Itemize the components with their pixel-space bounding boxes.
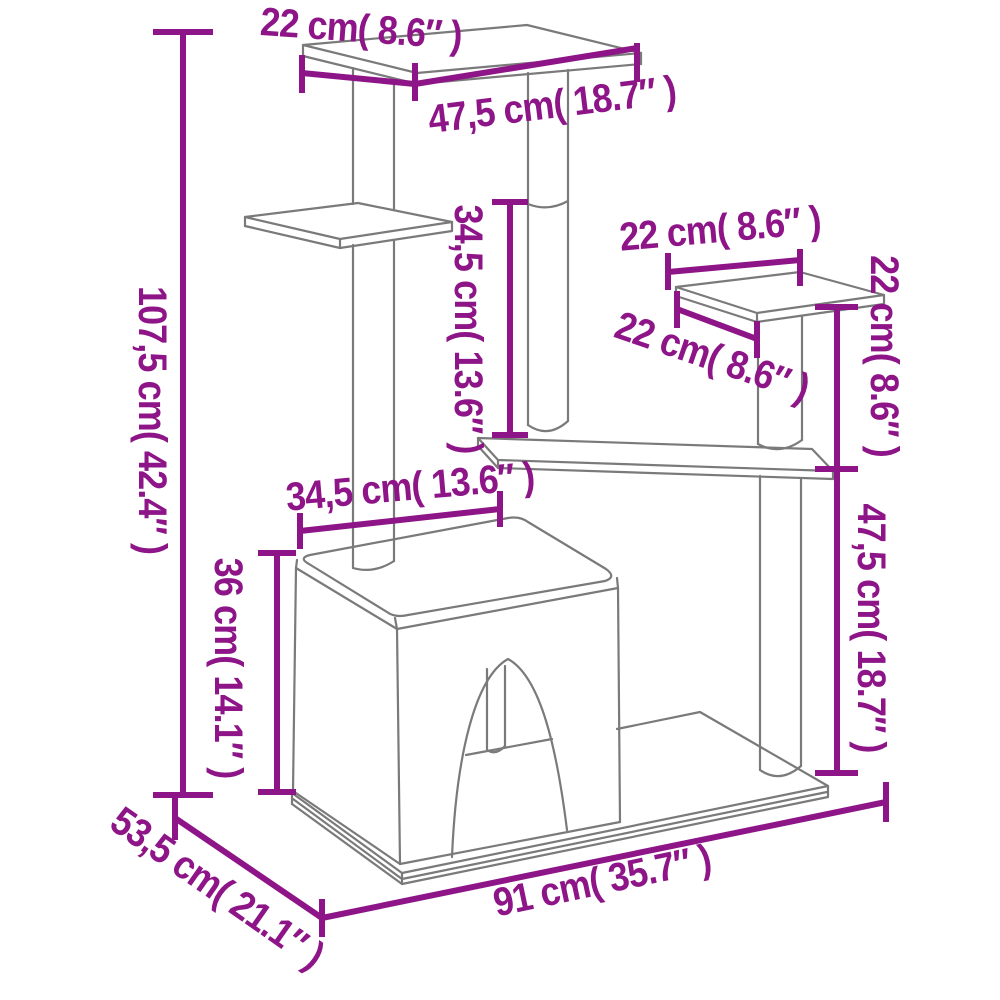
dimension-diagram: 107,5 cm( 42.4″ ) 22 cm( 8.6″ ) 47,5 cm(… [0,0,1000,1000]
dim-side-platform-width [668,249,800,290]
dim-label-lower-post-height: 47,5 cm( 18.7″ ) [851,504,891,753]
right-post-lower [760,476,801,776]
dim-label-side-post-height: 22 cm( 8.6″ ) [864,255,904,457]
dim-label-middle-post-height: 34,5 cm( 13.6″ ) [448,205,488,454]
right-platform [676,272,884,322]
house-arch-door [452,659,567,857]
cat-house [293,518,620,865]
left-platform [245,203,452,248]
dim-label-house-height: 36 cm( 14.1″ ) [208,558,248,779]
house-interior-floor [466,739,552,755]
dim-middle-post-height [492,202,528,435]
upper-left-post [353,68,394,210]
base-plate [292,712,828,884]
dim-house-height [258,553,296,792]
dim-label-total-height: 107,5 cm( 42.4″ ) [132,286,172,554]
